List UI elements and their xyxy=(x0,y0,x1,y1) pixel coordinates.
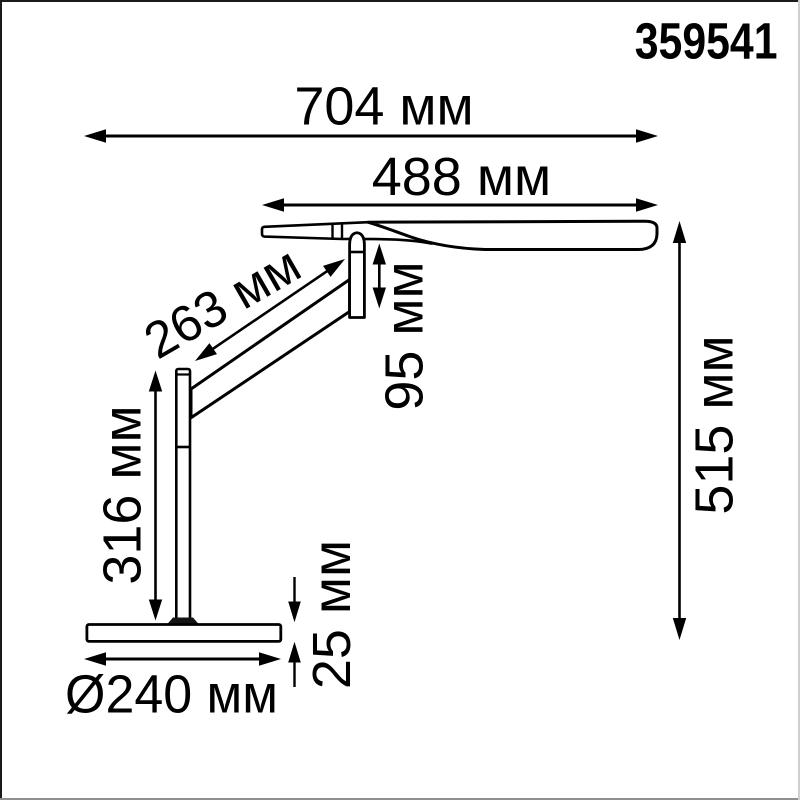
svg-text:316 мм: 316 мм xyxy=(93,405,153,584)
svg-text:95 мм: 95 мм xyxy=(375,261,435,410)
svg-text:Ø240 мм: Ø240 мм xyxy=(65,665,278,725)
svg-text:704 мм: 704 мм xyxy=(294,77,473,137)
svg-text:488 мм: 488 мм xyxy=(372,147,551,207)
svg-text:359541: 359541 xyxy=(635,12,778,69)
svg-text:25 мм: 25 мм xyxy=(302,540,362,689)
svg-text:515 мм: 515 мм xyxy=(685,335,745,514)
